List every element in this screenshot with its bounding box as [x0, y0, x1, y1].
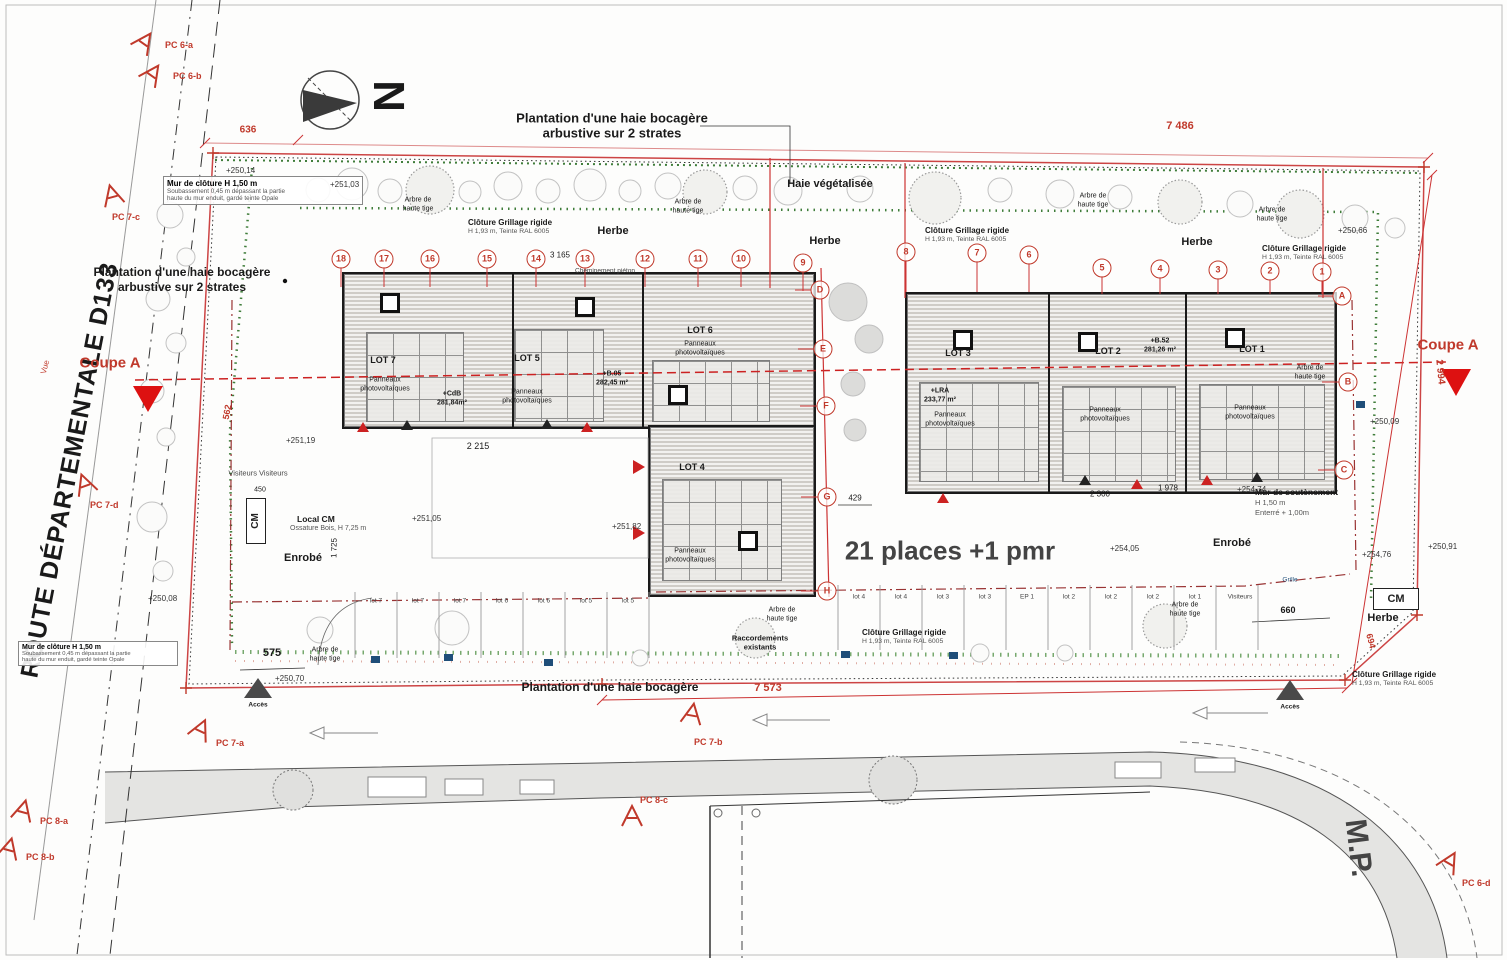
lot6-label: LOT 6: [687, 325, 713, 335]
hedge-note-bottom: Plantation d'une haie bocagère: [522, 680, 699, 694]
fence-note-1a: Clôture Grillage rigide: [468, 218, 552, 227]
stall-label: lot 2: [1105, 594, 1117, 601]
pv-lot4-1: Panneaux: [674, 548, 706, 555]
level-25474: +254,74: [1237, 485, 1266, 494]
stall-label: lot 6: [538, 598, 550, 605]
asphalt-label-1: Enrobé: [284, 552, 322, 564]
pc-marker-8c: PC 8-c: [640, 795, 668, 805]
dim-636: 636: [240, 125, 257, 136]
level-25070: +250,70: [275, 674, 304, 683]
tree-note-4b: haute tige: [1257, 216, 1288, 223]
grid-bubble-4: 4: [1151, 260, 1170, 279]
grid-bubble-13: 13: [576, 250, 595, 269]
wall-spec-line2: haute du mur enduit, gardé teinte Opale: [167, 195, 359, 202]
stall-label: lot 7: [370, 598, 382, 605]
level-25119: +251,19: [286, 436, 315, 445]
roof-hatch: [575, 297, 595, 317]
level-25014: +250,14: [226, 166, 255, 175]
party-wall: [1185, 292, 1187, 494]
grid-bubble-3: 3: [1209, 261, 1228, 280]
pv-panel-lot2: [1062, 386, 1176, 482]
dim-1725: 1 725: [329, 538, 338, 558]
dim-660: 660: [1280, 605, 1295, 615]
tree-note-2a: Arbre de: [675, 199, 702, 206]
stall-label: lot 3: [937, 594, 949, 601]
grid-bubble-11: 11: [689, 250, 708, 269]
grid-bubble-7: 7: [968, 244, 987, 263]
grid-bubble-14: 14: [527, 250, 546, 269]
visitors-note: Visiteurs Visiteurs: [228, 469, 287, 478]
tree-note-3b: haute tige: [1078, 202, 1109, 209]
path-note: Cheminement piéton: [575, 268, 635, 275]
lot4-label: LOT 4: [679, 462, 705, 472]
pc-marker-7d: PC 7-d: [90, 500, 119, 510]
cm-box-right: CM: [1373, 588, 1419, 610]
grid-bubble-F: F: [817, 397, 836, 416]
dim-1978: 1 978: [1158, 484, 1178, 493]
grid-bubble-C: C: [1335, 461, 1354, 480]
lot1-label: LOT 1: [1239, 344, 1265, 354]
north-letter: N: [363, 80, 413, 112]
area-b05-2: 282,45 m²: [596, 380, 628, 387]
stall-label: Visiteurs: [1228, 594, 1253, 601]
dim-7573: 7 573: [754, 682, 782, 694]
grid-bubble-8: 8: [897, 243, 916, 262]
fence-note-2a: Clôture Grillage rigide: [925, 226, 1009, 235]
pc-marker-8a: PC 8-a: [40, 816, 68, 826]
grid-bubble-A: A: [1333, 287, 1352, 306]
wall-spec-title: Mur de clôture H 1,50 m: [22, 644, 174, 651]
grid-bubble-1: 1: [1313, 263, 1332, 282]
lot7-label: LOT 7: [370, 355, 396, 365]
grid-bubble-G: G: [818, 488, 837, 507]
coupe-a-right: Coupe A: [1417, 337, 1478, 354]
dim-7486: 7 486: [1166, 120, 1194, 132]
grid-bubble-17: 17: [375, 250, 394, 269]
area-lra-2: 233,77 m²: [924, 397, 956, 404]
tree-note-6b: haute tige: [767, 616, 798, 623]
stall-label: lot 1: [1189, 594, 1201, 601]
dim-450: 450: [254, 487, 266, 494]
pc-marker-8b: PC 8-b: [26, 852, 55, 862]
grid-bubble-9: 9: [794, 254, 813, 273]
pv-panel-lot5: [514, 329, 604, 422]
building-row-lots-3-2-1: [905, 292, 1337, 494]
dim-2994: 2 994: [1433, 359, 1447, 385]
grid-bubble-H: H: [818, 582, 837, 601]
hedge-note-top-line1: Plantation d'une haie bocagère: [516, 111, 708, 126]
pc-marker-6b: PC 6-b: [173, 71, 202, 81]
pv-panel-lot1: [1199, 384, 1325, 480]
hedge-veg-label: Haie végétalisée: [787, 178, 873, 190]
area-b05-1: +B.05: [603, 371, 622, 378]
raccord-note-1: Raccordements: [732, 634, 788, 643]
level-25009: +250,09: [1370, 417, 1399, 426]
level-25476: +254,76: [1362, 550, 1391, 559]
grid-bubble-2: 2: [1261, 262, 1280, 281]
lot5-label: LOT 5: [514, 353, 540, 363]
level-25008: +250,08: [148, 594, 177, 603]
tree-note-1a: Arbre de: [405, 197, 432, 204]
pc-marker-7a: PC 7-a: [216, 738, 244, 748]
stall-label: lot 4: [895, 594, 907, 601]
pv-lot6-2: photovoltaïques: [675, 350, 724, 357]
grid-bubble-B: B: [1339, 373, 1358, 392]
vue-label: Vue: [39, 359, 51, 375]
stall-label: lot 5: [580, 598, 592, 605]
area-lra-1: +LRA: [931, 388, 949, 395]
tree-note-3a: Arbre de: [1080, 193, 1107, 200]
pv-lot2-2: photovoltaïques: [1080, 416, 1129, 423]
route-name: ROUTE DÉPARTEMENTALE D133: [15, 260, 124, 681]
stall-label: lot 7: [412, 598, 424, 605]
level-25182: +251,82: [612, 522, 641, 531]
stall-label: lot 3: [979, 594, 991, 601]
pv-lot3-2: photovoltaïques: [925, 421, 974, 428]
grass-label-4: Herbe: [1367, 612, 1398, 624]
dim-694: 694: [1364, 632, 1378, 649]
wall-spec-line1: Soubassement 0,45 m dépassant la partie: [167, 188, 359, 195]
fence-note-1b: H 1,93 m, Teinte RAL 6005: [468, 228, 549, 235]
tree-note-4a: Arbre de: [1259, 207, 1286, 214]
pv-panel-lot4: [662, 479, 782, 581]
roof-hatch: [738, 531, 758, 551]
cm-box-left: CM: [246, 498, 266, 544]
cm-box-left-label: CM: [234, 513, 278, 529]
level-25103: +251,03: [330, 180, 359, 189]
tree-note-1b: haute tige: [403, 206, 434, 213]
pv-lot1-2: photovoltaïques: [1225, 414, 1274, 421]
fence-note-4b: H 1,93 m, Teinte RAL 6005: [862, 638, 943, 645]
tree-note-8a: Arbre de: [312, 647, 339, 654]
stall-label: EP 1: [1020, 594, 1034, 601]
tree-note-5b: haute tige: [1295, 374, 1326, 381]
fence-note-3a: Clôture Grillage rigide: [1262, 244, 1346, 253]
area-cdb-1: +CdB: [443, 391, 461, 398]
lot2-label: LOT 2: [1095, 346, 1121, 356]
wall-note-2: H 1,50 m: [1255, 498, 1285, 507]
stall-label: lot 6: [496, 598, 508, 605]
grid-bubble-E: E: [814, 340, 833, 359]
pc-marker-6a: PC 6-a: [165, 40, 193, 50]
area-b52-1: +B.52: [1151, 338, 1170, 345]
dim-2300: 2 300: [1090, 490, 1110, 499]
stall-label: lot 7: [454, 598, 466, 605]
level-25405: +254,05: [1110, 544, 1139, 553]
dim-575: 575: [263, 647, 281, 659]
cm-box-right-label: CM: [1387, 593, 1404, 605]
grid-bubble-15: 15: [478, 250, 497, 269]
fence-note-3b: H 1,93 m, Teinte RAL 6005: [1262, 254, 1343, 261]
roof-hatch: [953, 330, 973, 350]
mp-label: M.P.: [1338, 817, 1379, 879]
tree-note-5a: Arbre de: [1297, 365, 1324, 372]
pv-lot1-1: Panneaux: [1234, 405, 1266, 412]
wall-spec-line2: haute du mur enduit, gardé teinte Opale: [22, 657, 174, 663]
dim-3165: 3 165: [550, 251, 570, 260]
hedge-note-left-line1: Plantation d'une haie bocagère: [94, 265, 271, 279]
area-cdb-2: 281,84m²: [437, 400, 467, 407]
tree-note-7b: haute tige: [1170, 611, 1201, 618]
pv-lot6-1: Panneaux: [684, 341, 716, 348]
grid-bubble-18: 18: [332, 250, 351, 269]
grid-bubble-10: 10: [732, 250, 751, 269]
wall-spec-box-bottom: Mur de clôture H 1,50 m Soubassement 0,4…: [18, 641, 178, 666]
parking-count-note: 21 places +1 pmr: [845, 536, 1055, 567]
dim-562: 562: [221, 404, 233, 421]
wall-note-1: Mur de soutènement: [1255, 487, 1338, 497]
pv-lot5-1: Panneaux: [511, 389, 543, 396]
level-25091: +250,91: [1428, 542, 1457, 551]
grid-bubble-12: 12: [636, 250, 655, 269]
pv-lot2-1: Panneaux: [1089, 407, 1121, 414]
roof-hatch: [380, 293, 400, 313]
grass-label-1: Herbe: [597, 225, 628, 237]
pc-marker-7b: PC 7-b: [694, 737, 723, 747]
pc-marker-6d: PC 6-d: [1462, 878, 1491, 888]
stall-label: lot 5: [622, 598, 634, 605]
party-wall: [1048, 292, 1050, 494]
level-25066: +250,66: [1338, 226, 1367, 235]
building-lot4: [648, 425, 816, 597]
grid-bubble-16: 16: [421, 250, 440, 269]
dim-2215: 2 215: [467, 441, 490, 451]
local-cm-2: Ossature Bois, H 7,25 m: [290, 525, 366, 532]
tree-note-6a: Arbre de: [769, 607, 796, 614]
grid-bubble-D: D: [811, 281, 830, 300]
pv-lot7-2: photovoltaïques: [360, 386, 409, 393]
party-wall: [642, 272, 644, 429]
site-plan: 18 17 16 15 14 13 12 11 10 9 8 7 6 5 4 3…: [0, 0, 1507, 960]
access-label-1: Accès: [248, 702, 267, 709]
grate-label: Grille: [1282, 577, 1297, 584]
lot3-label: LOT 3: [945, 348, 971, 358]
hedge-note-left-line2: arbustive sur 2 strates: [118, 280, 246, 294]
stall-label: lot 2: [1063, 594, 1075, 601]
building-row-lots-7-5-6: [342, 272, 816, 429]
roof-hatch: [668, 385, 688, 405]
pv-lot5-2: photovoltaïques: [502, 398, 551, 405]
coupe-a-left: Coupe A: [79, 355, 140, 372]
stall-label: lot 2: [1147, 594, 1159, 601]
pv-lot4-2: photovoltaïques: [665, 557, 714, 564]
area-b52-2: 281,26 m²: [1144, 347, 1176, 354]
access-label-2: Accès: [1280, 704, 1299, 711]
hedge-note-top-line2: arbustive sur 2 strates: [543, 126, 682, 141]
fence-note-2b: H 1,93 m, Teinte RAL 6005: [925, 236, 1006, 243]
pc-marker-7c: PC 7-c: [112, 212, 140, 222]
dim-429: 429: [848, 494, 861, 503]
grass-label-3: Herbe: [1181, 236, 1212, 248]
level-25105: +251,05: [412, 514, 441, 523]
tree-note-7a: Arbre de: [1172, 602, 1199, 609]
tree-note-2b: haute tige: [673, 208, 704, 215]
fence-note-5b: H 1,93 m, Teinte RAL 6005: [1352, 680, 1433, 687]
grass-label-2: Herbe: [809, 235, 840, 247]
raccord-note-2: existants: [744, 643, 777, 652]
local-cm-1: Local CM: [297, 514, 335, 524]
fence-note-4a2: Clôture Grillage rigide: [862, 628, 946, 637]
grid-bubble-6: 6: [1020, 246, 1039, 265]
tree-note-8b: haute tige: [310, 656, 341, 663]
pv-lot7-1: Panneaux: [369, 377, 401, 384]
grid-bubble-5: 5: [1093, 259, 1112, 278]
pv-lot3-1: Panneaux: [934, 412, 966, 419]
wall-note-3: Enterré + 1,00m: [1255, 508, 1309, 517]
asphalt-label-2: Enrobé: [1213, 537, 1251, 549]
stall-label: lot 4: [853, 594, 865, 601]
fence-note-5a: Clôture Grillage rigide: [1352, 670, 1436, 679]
